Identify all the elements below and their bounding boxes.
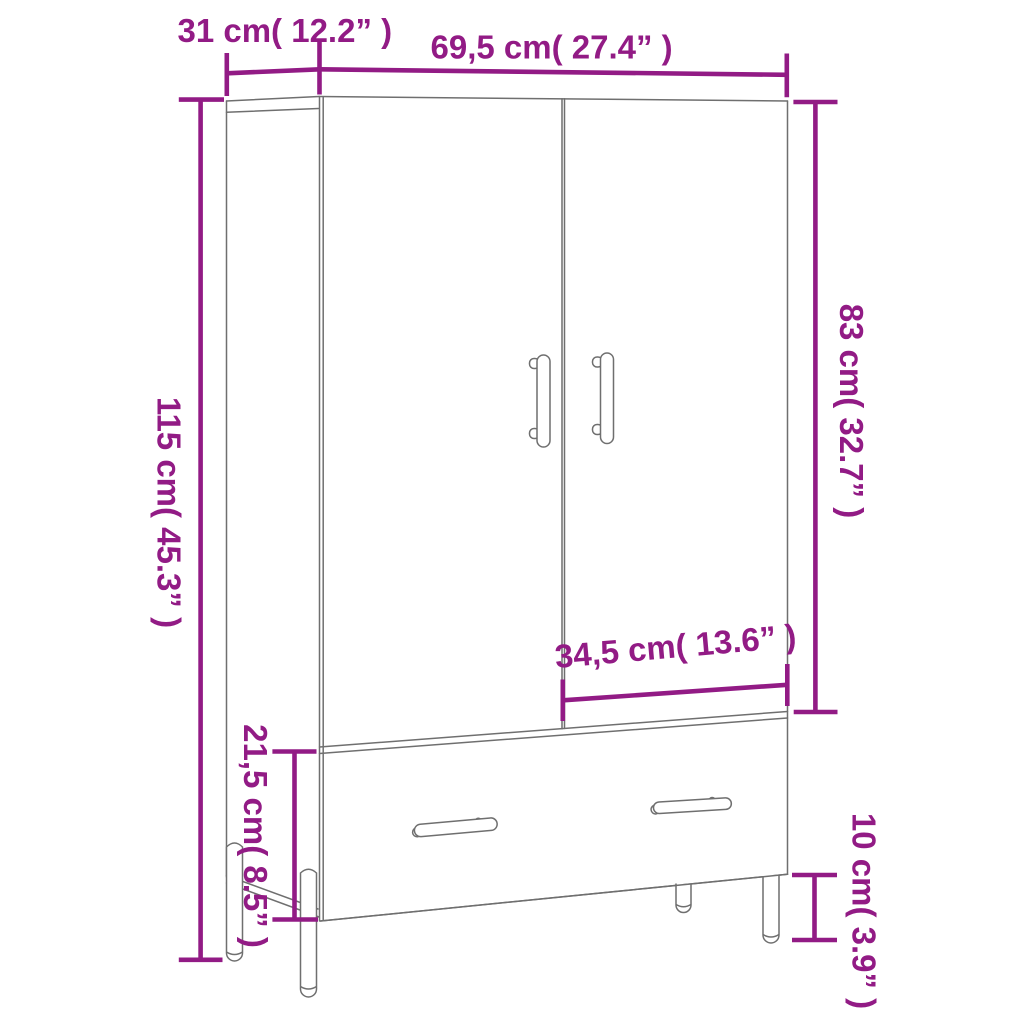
- svg-text:115 cm( 45.3” ): 115 cm( 45.3” ): [151, 397, 188, 628]
- svg-text:83 cm( 32.7” ): 83 cm( 32.7” ): [833, 304, 870, 519]
- svg-text:31 cm( 12.2” ): 31 cm( 12.2” ): [177, 12, 392, 49]
- svg-text:10 cm( 3.9” ): 10 cm( 3.9” ): [845, 813, 882, 1009]
- svg-text:21,5 cm( 8.5” ): 21,5 cm( 8.5” ): [237, 724, 274, 948]
- svg-text:69,5 cm( 27.4” ): 69,5 cm( 27.4” ): [431, 28, 673, 65]
